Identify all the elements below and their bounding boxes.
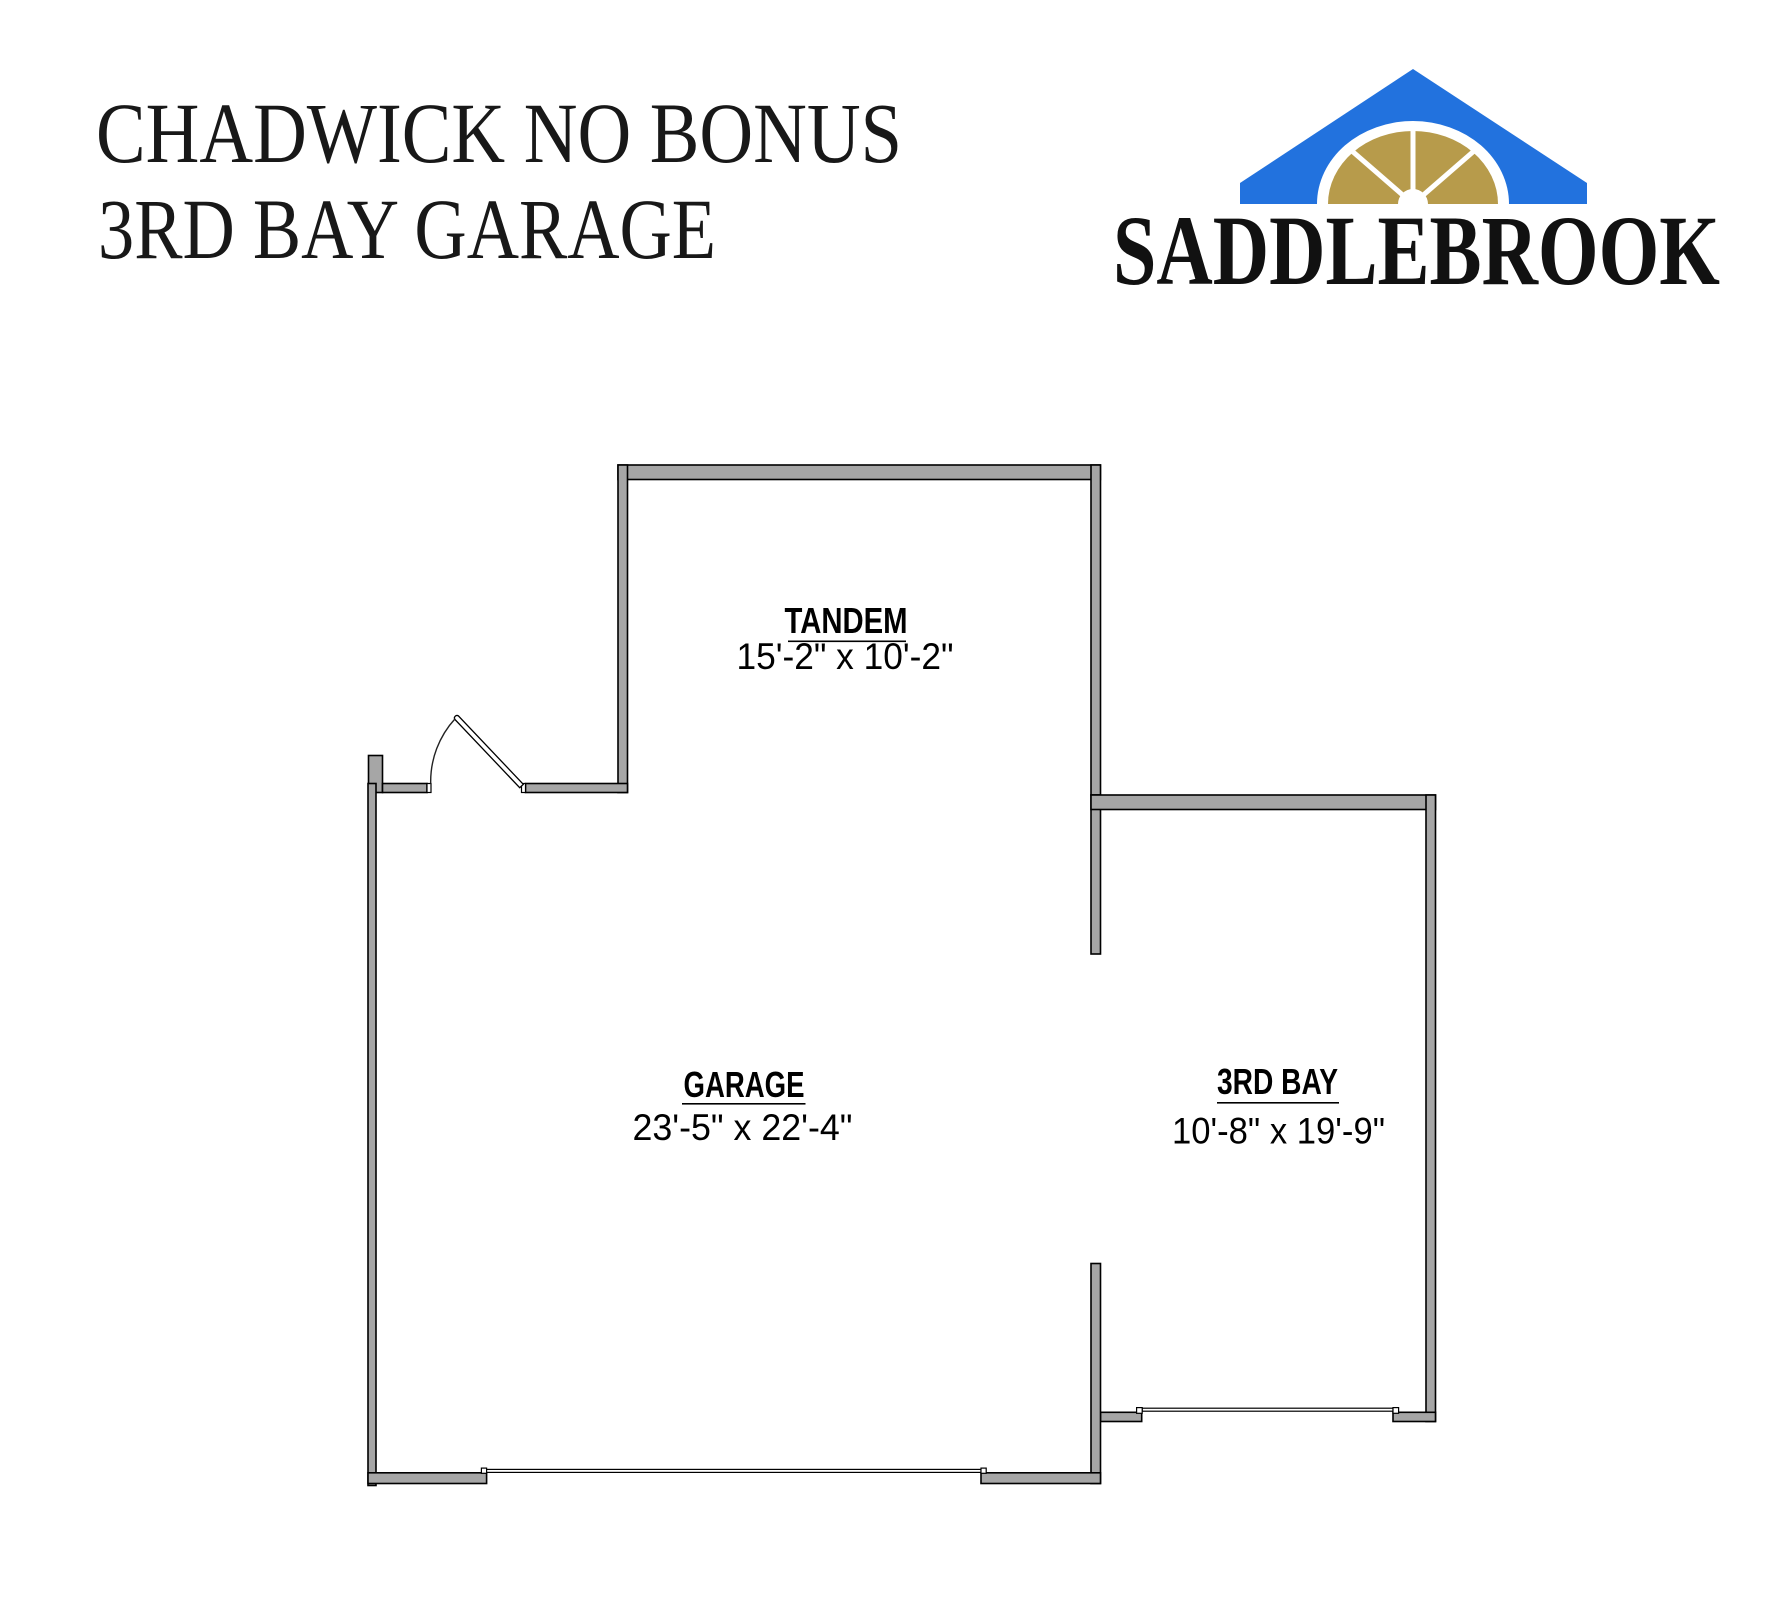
svg-text:SADDLEBROOK: SADDLEBROOK [1113, 195, 1720, 306]
svg-text:10'-8" x 19'-9": 10'-8" x 19'-9" [1172, 1110, 1385, 1152]
svg-text:3RD BAY: 3RD BAY [1217, 1061, 1338, 1102]
svg-text:15'-2" x 10'-2": 15'-2" x 10'-2" [737, 635, 954, 677]
svg-text:3RD BAY GARAGE: 3RD BAY GARAGE [98, 181, 716, 277]
svg-text:CHADWICK NO BONUS: CHADWICK NO BONUS [96, 85, 902, 181]
svg-text:GARAGE: GARAGE [684, 1064, 805, 1105]
svg-text:23'-5" x 22'-4": 23'-5" x 22'-4" [633, 1106, 853, 1148]
